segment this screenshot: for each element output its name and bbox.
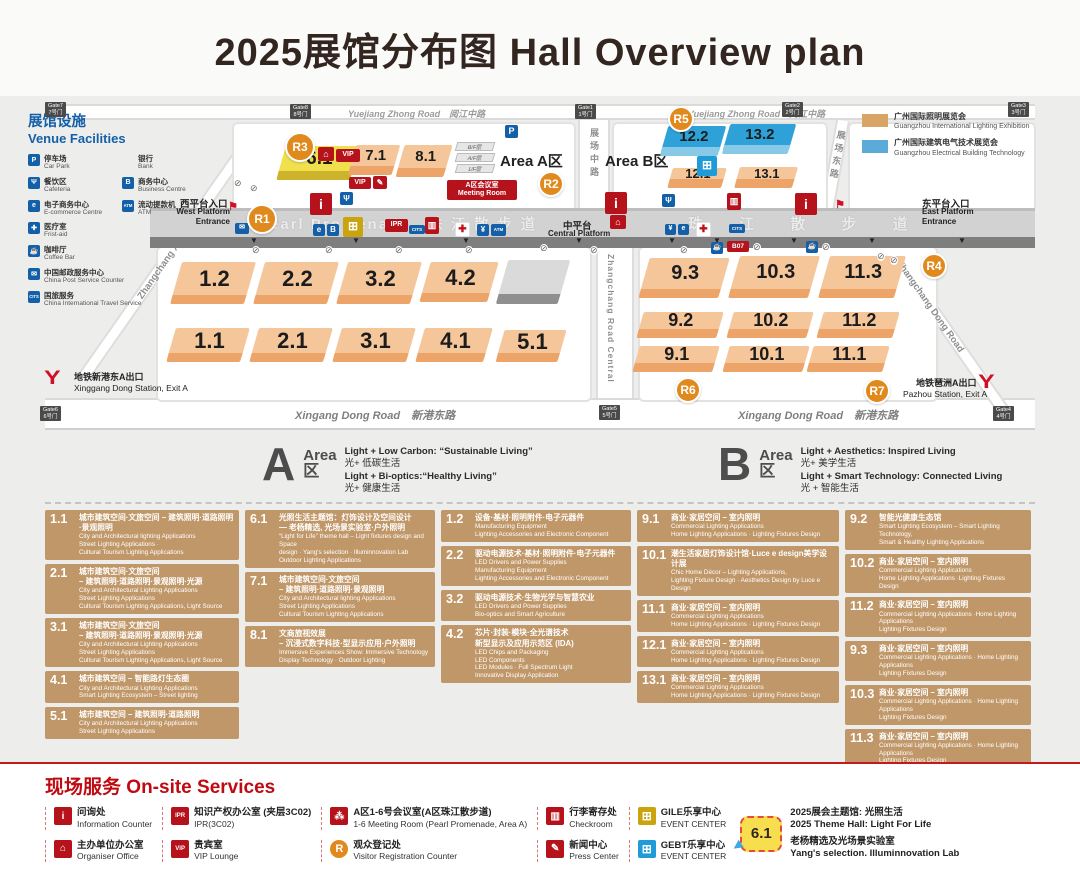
hall-number: 3.1 (50, 621, 74, 665)
legend-column-a: 1.1 城市建筑空间·文旅空间 – 建筑照明·道路照明·景观照明City and… (45, 510, 239, 762)
service-zh: A区1-6号会议室(A区珠江散步道) (353, 807, 527, 819)
hall-desc-en: Commercial Lighting Applications ·Home L… (879, 611, 1026, 635)
bank-icon: ¥ (477, 224, 489, 236)
hall-desc-zh: 商业·家居空间 – 室内照明 (879, 644, 1026, 654)
legend-column-c: 1.2 设备·基材·照明附件·电子元器件Manufacturing Equipm… (441, 510, 631, 762)
arrow-icon: ▼ (790, 236, 798, 245)
legend-column-e: 9.2 智能光健康生态馆Smart Lighting Ecosystem – S… (845, 510, 1031, 762)
ecommerce-icon: e (28, 200, 40, 212)
hall-legend-row: 11.1 商业·家居空间 – 室内照明Commercial Lighting A… (637, 600, 839, 632)
pen-icon: ✎ (546, 840, 564, 858)
facilities-title-en: Venue Facilities (28, 131, 234, 146)
hall-desc-en: Chic Home Décor – Lighting Applications,… (671, 569, 834, 593)
metro-left-en: Xinggang Dong Station, Exit A (74, 383, 188, 393)
hall: 13.2 (722, 124, 797, 154)
hall-desc-en: Manufacturing Equipment Lighting Accesso… (475, 523, 608, 539)
hall-number: 4.2 (445, 265, 476, 291)
arrow-icon: ▼ (250, 236, 258, 245)
service-en: 1-6 Meeting Room (Pearl Promenade, Area … (353, 819, 527, 830)
service-zh: 贵宾室 (194, 840, 238, 852)
hall: 10.2 (726, 312, 813, 338)
arrow-icon: ▼ (868, 236, 876, 245)
gate-badge: Gate1 1号门 (575, 104, 596, 119)
hall-desc-zh: 商业·家居空间 – 室内照明 (671, 513, 820, 523)
vip-icon: VIP (171, 840, 189, 858)
hall-number: 9.2 (850, 513, 874, 547)
no-bicycle-icon: ⊘ (540, 244, 548, 253)
registration-marker: R4 (921, 253, 947, 279)
luggage-icon: ▥ (546, 807, 564, 825)
registration-marker: R7 (864, 378, 890, 404)
facility-en: China Post Service Counter (44, 277, 124, 285)
service-en: Information Counter (77, 819, 152, 830)
area-word: Area (303, 448, 336, 463)
hall-number: 11.3 (844, 261, 882, 284)
atm-icon: ATM (122, 200, 134, 212)
hall-desc-zh: 光照生活主题馆：灯饰设计及空间设计 — 老杨精选, 光场景实验室·户外照明 (279, 513, 430, 533)
west-entrance-en: West Platform Entrance (172, 207, 230, 226)
flag-icon: ⚑ (833, 198, 847, 212)
legend-zh: 广州国际建筑电气技术展览会 (894, 138, 1025, 148)
parking-icon: P (505, 125, 518, 138)
theme-en1: 2025 Theme Hall: Light For Life (790, 819, 959, 831)
hall: 12.2 (660, 126, 727, 156)
no-bicycle-icon: ⊘ (395, 246, 403, 255)
theme-hall-number: 6.1 (751, 825, 772, 842)
hall-number: 7.1 (365, 147, 386, 164)
post-icon: ✉ (235, 223, 249, 234)
east-entrance-en: East Platform Entrance (922, 207, 974, 226)
hall-number: 1.1 (194, 328, 225, 354)
service-en: EVENT CENTER (661, 819, 727, 830)
exhibition-legend: 广州国际照明展览会Guangzhou International Lightin… (862, 112, 1029, 165)
no-bicycle-icon: ⊘ (680, 246, 688, 255)
hall: 10.3 (728, 256, 820, 298)
hall-legend-row: 11.2 商业·家居空间 – 室内照明Commercial Lighting A… (845, 597, 1031, 637)
hall-desc-zh: 商业·家居空间 – 室内照明 (879, 688, 1026, 698)
area-a-line3: Light + Bi-optics:“Healthy Living” (345, 471, 533, 483)
hall-number: 9.3 (671, 262, 699, 285)
hall-desc-en: City and Architectural lighting Applicat… (79, 533, 234, 557)
hall-number: 2.2 (282, 266, 313, 292)
hall-desc-zh: 城市建筑空间 – 建筑照明·道路照明 (79, 710, 199, 720)
hall-desc-en: City and Architectural Lighting Applicat… (79, 720, 199, 736)
legend-en: Guangzhou Electrical Building Technology (894, 149, 1025, 158)
hall-desc-en: Commercial Lighting Applications · Home … (879, 742, 1026, 762)
post-icon: ✉ (28, 268, 40, 280)
hall-number: 4.1 (440, 328, 471, 354)
area-b-line3: Light + Smart Technology: Connected Livi… (801, 471, 1003, 483)
legend-item: 广州国际照明展览会Guangzhou International Lightin… (862, 112, 1029, 131)
hall-number: 10.3 (756, 261, 795, 284)
service-en: Checkroom (569, 819, 617, 830)
service-en: Visitor Registration Counter (353, 851, 457, 862)
hall-number: 4.1 (50, 674, 74, 700)
hall: 8.1 (395, 145, 452, 177)
hall-number: 2.1 (277, 328, 308, 354)
hall: 3.2 (336, 262, 422, 304)
hall-legend-row: 10.2 商业·家居空间 – 室内照明Commercial Lighting A… (845, 554, 1031, 594)
luggage-icon: ▥ (425, 217, 439, 234)
hall-desc-en: Commercial Lighting Applications · Home … (879, 654, 1026, 678)
hall-number: 13.2 (746, 126, 775, 143)
ecommerce-icon: e (313, 224, 325, 236)
cafeteria-icon: Ψ (662, 194, 675, 207)
facility-en: ATM (138, 209, 176, 217)
service-item: ⊞ GILE乐享中心EVENT CENTER (629, 807, 727, 830)
hall-desc-zh: 商业·家居空间 – 室内照明 (879, 600, 1026, 610)
hall-number: 5.1 (517, 329, 548, 355)
hall-desc-en: Smart Lighting Ecosystem – Smart Lightin… (879, 523, 1026, 547)
gate-badge: Gate3 3号门 (1008, 102, 1029, 117)
registration-marker: R1 (247, 204, 277, 234)
hall-desc-en: City and Architectural lighting Applicat… (279, 595, 396, 619)
hall: 13.1 (734, 167, 798, 188)
gate-badge: Gate7 7号门 (45, 102, 66, 117)
hall-desc-zh: 商业·家居空间 – 室内照明 (879, 732, 1026, 742)
service-item: VIP 贵宾室VIP Lounge (162, 840, 311, 863)
cits-icon: CITS (729, 224, 745, 233)
hall-number: 10.1 (750, 344, 785, 365)
cits-icon: CITS (28, 291, 40, 303)
hall-number: 10.3 (850, 688, 874, 722)
area-word: Area (759, 448, 792, 463)
hall-number: 10.1 (642, 549, 666, 593)
gift-icon: ⊞ (638, 840, 656, 858)
facility-en: Coffee Bar (44, 254, 75, 262)
hall-number: 9.3 (850, 644, 874, 678)
metro-icon: Y (978, 372, 994, 394)
arrow-icon: ▼ (958, 236, 966, 245)
meeting-room-icon: ⁂ (330, 807, 348, 825)
facility-zh: 国旅服务 (44, 291, 142, 300)
area-a-line4: 光+ 健康生活 (345, 483, 533, 495)
megaphone-icon: ◀ (730, 837, 744, 853)
facility-zh: 停车场 (44, 154, 70, 163)
arrow-icon: ▼ (462, 236, 470, 245)
service-en: Organiser Office (77, 851, 144, 862)
arrow-icon: ▼ (352, 236, 360, 245)
hall-number: 8.1 (250, 629, 274, 665)
hall-number: 9.1 (665, 344, 690, 365)
road-label: Xingang Dong Road 新港东路 (295, 407, 455, 423)
area-b-label: Area B区 (605, 150, 668, 171)
hall-number: 11.1 (832, 344, 866, 365)
service-item: ⌂ 主办单位办公室Organiser Office (45, 840, 152, 863)
central-platform-en: Central Platform (548, 229, 610, 239)
hall-number: 11.3 (850, 732, 874, 762)
no-bicycle-icon: ⊘ (890, 256, 898, 265)
metro-icon: Y (44, 368, 60, 390)
hall-desc-zh: 驱动电源技术·基材·照明附件·电子元器件 (475, 549, 615, 559)
registration-icon: R (330, 840, 348, 858)
theme-en2: Yang's selection. Illuminnovation Lab (790, 848, 959, 860)
hall-desc-en: Commercial Lighting Applications Home Li… (671, 684, 820, 700)
event-center-icon: ⊞ (343, 217, 363, 237)
gate-badge: Gate8 8号门 (290, 104, 311, 119)
car-park-icon: P (28, 154, 40, 166)
cits-icon: CITS (409, 225, 425, 234)
registration-marker: R2 (538, 171, 564, 197)
area-a-line2: 光+ 低碳生活 (345, 458, 533, 470)
hall-number: 3.1 (360, 328, 391, 354)
legend-en: Guangzhou International Lighting Exhibit… (894, 122, 1029, 131)
info-icon: i (54, 807, 72, 825)
facility-zh: 电子商务中心 (44, 200, 102, 209)
hall: 9.3 (638, 258, 729, 298)
no-bicycle-icon: ⊘ (252, 246, 260, 255)
hall: 10.1 (722, 346, 809, 372)
hall-legend-row: 1.2 设备·基材·照明附件·电子元器件Manufacturing Equipm… (441, 510, 631, 542)
hall-desc-en: City and Architectural Lighting Applicat… (79, 641, 222, 665)
hall: 2.2 (253, 262, 339, 304)
hall-desc-en: Commercial Lighting Applications Home Li… (671, 523, 820, 539)
coffee-icon: ☕ (28, 245, 40, 257)
facility-item: CITS 国旅服务China International Travel Serv… (28, 291, 234, 308)
hall-desc-en: City and Architectural Lighting Applicat… (79, 685, 198, 701)
cafeteria-icon: Ψ (340, 192, 353, 205)
hall-number: 12.1 (642, 639, 666, 665)
facility-en: Car Park (44, 163, 70, 171)
hall-desc-en: LED Drivers and Power Supplies Bio-optic… (475, 603, 595, 619)
service-en: IPR(3C02) (194, 819, 311, 830)
hall-legend-row: 12.1 商业·家居空间 – 室内照明Commercial Lighting A… (637, 636, 839, 668)
hall: 11.2 (816, 312, 899, 338)
facility-zh: 中国邮政服务中心 (44, 268, 124, 277)
hall-number: 5.1 (50, 710, 74, 736)
hall-desc-zh: 城市建筑空间·文旅空间 – 建筑照明·道路照明·景观照明 (79, 513, 234, 533)
hall: 4.1 (415, 328, 493, 362)
hall-legend-row: 6.1 光照生活主题馆：灯饰设计及空间设计 — 老杨精选, 光场景实验室·户外照… (245, 510, 435, 568)
hall-number: 13.1 (642, 674, 666, 700)
organiser-office-icon: ⌂ (318, 147, 334, 161)
no-bicycle-icon: ⊘ (590, 246, 598, 255)
service-item: ▥ 行李寄存处Checkroom (537, 807, 619, 830)
hall-desc-zh: 城市建筑空间·文旅空间 – 建筑照明·道路照明·景观照明·光源 (79, 621, 222, 641)
area-qu: 区 (759, 463, 792, 481)
services-title-en: On-site Services (126, 777, 275, 798)
hall-number: 2.2 (446, 549, 470, 583)
service-zh: 知识产权办公室 (夹层3C02) (194, 807, 311, 819)
hall-desc-zh: 商业·家居空间 – 室内照明 (671, 603, 820, 613)
facility-item: ✉ 中国邮政服务中心China Post Service Counter (28, 268, 234, 285)
info-icon: i (605, 192, 627, 214)
organiser-office-icon: ⌂ (610, 215, 626, 229)
hall: 3.1 (332, 328, 416, 362)
hall-desc-zh: 商业·家居空间 – 室内照明 (671, 674, 820, 684)
hall-legend-row: 2.2 驱动电源技术·基材·照明附件·电子元器件LED Drivers and … (441, 546, 631, 586)
business-centre-icon: B (122, 177, 134, 189)
service-en: VIP Lounge (194, 851, 238, 862)
hall-legend-row: 11.3 商业·家居空间 – 室内照明Commercial Lighting A… (845, 729, 1031, 762)
service-item: IPR 知识产权办公室 (夹层3C02)IPR(3C02) (162, 807, 311, 830)
theme-hall-note: ◀6.1 2025展会主题馆: 光照生活 2025 Theme Hall: Li… (740, 807, 959, 860)
facility-item: B 商务中心Business Centre (122, 177, 234, 194)
hall-desc-en: Commercial Lighting Applications Home Li… (879, 567, 1026, 591)
hall-legend-row: 9.2 智能光健康生态馆Smart Lighting Ecosystem – S… (845, 510, 1031, 550)
legend-column-b: 6.1 光照生活主题馆：灯饰设计及空间设计 — 老杨精选, 光场景实验室·户外照… (245, 510, 435, 762)
hall-legend-row: 10.1 潮生活家居灯饰设计馆·Luce e design美学设计展Chic H… (637, 546, 839, 596)
hall-number: 3.2 (446, 593, 470, 619)
hall-desc-zh: 设备·基材·照明附件·电子元器件 (475, 513, 608, 523)
hall: 9.2 (636, 312, 723, 338)
hall-desc-zh: 城市建筑空间 – 智能路灯生态圈 (79, 674, 198, 684)
hall-number: 7.1 (250, 575, 274, 619)
floor-level-label: B/F层 (455, 142, 496, 151)
vip-badge: VIP (349, 177, 371, 189)
info-icon: i (310, 193, 332, 215)
vip-badge: VIP (336, 149, 360, 162)
area-b-letter: B (718, 444, 751, 495)
hall-desc-zh: 智能光健康生态馆 (879, 513, 1026, 523)
hall-legend-row: 10.3 商业·家居空间 – 室内照明Commercial Lighting A… (845, 685, 1031, 725)
hall-legend-row: 5.1 城市建筑空间 – 建筑照明·道路照明City and Architect… (45, 707, 239, 739)
hall-desc-zh: 商业·家居空间 – 室内照明 (671, 639, 820, 649)
hall-number: 11.2 (842, 310, 876, 331)
area-a-letter: A (262, 444, 295, 495)
road-label: Xingang Dong Road 新港东路 (738, 407, 898, 423)
hall-number: 2.1 (50, 567, 74, 611)
theme-zh2: 老杨精选及光场景实验室 (790, 836, 959, 848)
facility-en: Frist-aid (44, 231, 67, 239)
hall: 11.1 (806, 346, 889, 372)
no-bicycle-icon: ⊘ (822, 243, 830, 252)
legend-column-d: 9.1 商业·家居空间 – 室内照明Commercial Lighting Ap… (637, 510, 839, 762)
hall: 1.1 (166, 328, 250, 362)
facility-zh: 商务中心 (138, 177, 186, 186)
facility-item: ✚ 医疗室Frist-aid (28, 222, 118, 239)
gift-icon: ⊞ (638, 807, 656, 825)
facility-item: Ψ 餐饮区Cafeteria (28, 177, 118, 194)
facility-en: Cafeteria (44, 186, 70, 194)
bank-icon: ¥ (665, 224, 676, 235)
area-a-line1: Light + Low Carbon: “Sustainable Living” (345, 446, 533, 458)
facility-item: 银行Bank (122, 154, 234, 171)
hall-number: 1.2 (446, 513, 470, 539)
area-b-line1: Light + Aesthetics: Inspired Living (801, 446, 1003, 458)
business-centre-icon: B (327, 224, 339, 236)
ipr-icon: IPR (385, 219, 408, 232)
service-zh: 主办单位办公室 (77, 840, 144, 852)
registration-marker: R6 (675, 377, 701, 403)
first-aid-icon: ✚ (28, 222, 40, 234)
no-bicycle-icon: ⊘ (465, 246, 473, 255)
metro-right-en: Pazhou Station, Exit A (903, 389, 987, 399)
hall-desc-en: LED Drivers and Power Supplies Manufactu… (475, 559, 615, 583)
facility-en: Business Centre (138, 186, 186, 194)
area-a-description: A Area区 Light + Low Carbon: “Sustainable… (262, 444, 533, 495)
no-bicycle-icon: ⊘ (250, 184, 258, 193)
service-item: ✎ 新闻中心Press Center (537, 840, 619, 863)
hall: 2.1 (249, 328, 333, 362)
hall-desc-en: Commercial Lighting Applications · Home … (879, 698, 1026, 722)
hall-number: 10.2 (850, 557, 874, 591)
facility-zh: 餐饮区 (44, 177, 70, 186)
no-bicycle-icon: ⊘ (753, 243, 761, 252)
area-a-label: Area A区 (500, 150, 563, 171)
hall-number: 11.2 (850, 600, 874, 634)
hall-desc-zh: 潮生活家居灯饰设计馆·Luce e design美学设计展 (671, 549, 834, 569)
hall-number: 9.2 (669, 310, 694, 331)
arrow-icon: ▼ (668, 236, 676, 245)
hall (496, 260, 571, 304)
coffee-icon: ☕ (806, 241, 818, 253)
services-title-zh: 现场服务 (45, 777, 121, 798)
no-bicycle-icon: ⊘ (877, 252, 885, 261)
page-title: 2025展馆分布图 Hall Overview plan (0, 0, 1080, 96)
facility-en: Bank (138, 163, 153, 171)
atm-icon: ATM (491, 224, 506, 236)
hall-legend-row: 4.2 芯片·封装·模块·全光谱技术 新型显示及应用示范区 (IDA)LED C… (441, 625, 631, 683)
gate-badge: Gate2 2号门 (782, 102, 803, 117)
bank-icon (122, 154, 134, 166)
area-qu: 区 (303, 463, 336, 481)
facility-en: E-commerce Centre (44, 209, 102, 217)
road-label: Yuejiang Zhong Road 阅江中路 (688, 107, 825, 120)
hall-number: 10.2 (754, 310, 789, 331)
service-zh: GILE乐享中心 (661, 807, 727, 819)
hall-desc-en: “Light for Life” theme hall – Light fixt… (279, 533, 430, 564)
facility-item: P 停车场Car Park (28, 154, 118, 171)
b07-badge: B07 (727, 241, 749, 252)
service-zh: 观众登记处 (353, 840, 457, 852)
press-pen-icon: ✎ (373, 176, 387, 189)
hall-number: 8.1 (415, 148, 436, 165)
service-item: ⁂ A区1-6号会议室(A区珠江散步道)1-6 Meeting Room (Pe… (321, 807, 527, 830)
luggage-icon: ▥ (727, 193, 741, 210)
service-zh: 问询处 (77, 807, 152, 819)
gate-badge: Gate6 6号门 (40, 406, 61, 421)
hall: 4.2 (419, 262, 498, 302)
info-icon: i (795, 193, 817, 215)
legend-swatch (862, 114, 888, 127)
hall-desc-zh: 文商旅视效展 – 沉浸式数字科技·型显示应用·户外照明 (279, 629, 428, 649)
hall-legend-row: 8.1 文商旅视效展 – 沉浸式数字科技·型显示应用·户外照明Immersive… (245, 626, 435, 668)
area-b-line4: 光 + 智能生活 (801, 483, 1003, 495)
hall: 5.1 (495, 330, 566, 362)
hall-number: 13.1 (755, 166, 780, 181)
legend-item: 广州国际建筑电气技术展览会Guangzhou Electrical Buildi… (862, 138, 1029, 157)
service-zh: 行李寄存处 (569, 807, 617, 819)
registration-marker: R3 (285, 132, 315, 162)
hall-desc-zh: 芯片·封装·模块·全光谱技术 新型显示及应用示范区 (IDA) (475, 628, 574, 648)
hall-number: 6.1 (250, 513, 274, 565)
facility-en: China International Travel Service (44, 300, 142, 308)
hall: 9.1 (632, 346, 719, 372)
ipr-icon: IPR (171, 807, 189, 825)
metro-right-zh: 地铁琶洲A出口 (916, 376, 977, 389)
area-b-line2: 光+ 美学生活 (801, 458, 1003, 470)
service-item: i 问询处Information Counter (45, 807, 152, 830)
road-label: Zhangchang Road Central (606, 254, 616, 383)
area-b-description: B Area区 Light + Aesthetics: Inspired Liv… (718, 444, 1002, 495)
hall-number: 4.2 (446, 628, 470, 680)
hall-desc-en: Commercial Lighting Applications Home Li… (671, 613, 820, 629)
arrow-icon: ▼ (713, 236, 721, 245)
event-center-icon: ⊞ (697, 156, 717, 176)
no-bicycle-icon: ⊘ (234, 179, 242, 188)
service-zh: GEBT乐享中心 (661, 840, 727, 852)
hall-desc-zh: 驱动电源技术·生物光学与智慧农业 (475, 593, 595, 603)
hall-legend-grid: 1.1 城市建筑空间·文旅空间 – 建筑照明·道路照明·景观照明City and… (0, 504, 1080, 762)
metro-left-zh: 地铁新港东A出口 (74, 370, 144, 383)
organiser-office-icon: ⌂ (54, 840, 72, 858)
floor-level-label: 1/F层 (455, 164, 496, 173)
hall-legend-row: 2.1 城市建筑空间·文旅空间 – 建筑照明·道路照明·景观照明·光源City … (45, 564, 239, 614)
service-en: Press Center (569, 851, 619, 862)
legend-swatch (862, 140, 888, 153)
gate-badge: Gate5 5号门 (599, 405, 620, 420)
